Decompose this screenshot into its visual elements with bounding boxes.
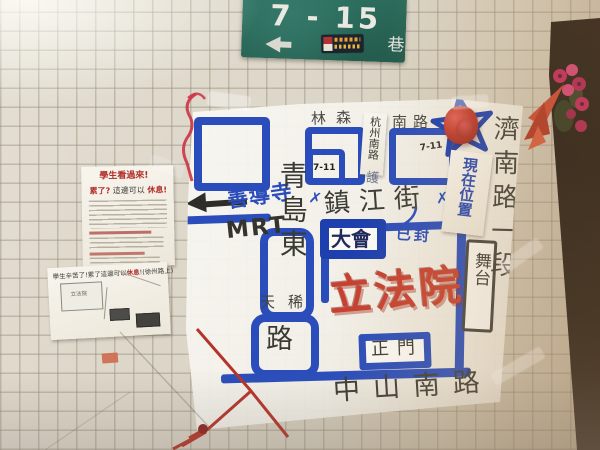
- flyer1-title: 學生看過來!: [99, 172, 148, 183]
- sticker-text-row: [334, 37, 360, 41]
- current-location-text: 現在位置: [455, 156, 479, 218]
- sticker-emblem: [323, 37, 332, 51]
- flyer1-subtitle-red2: 休息!: [147, 185, 167, 194]
- photo-of-wall-map: 7 - 15 巷 7-11 7-11 大會 正門: [0, 0, 600, 450]
- tape-street-label: 杭州南路: [360, 112, 387, 175]
- red-ribbon-ornament: [520, 82, 566, 152]
- flyer1-body-text-lines: [89, 236, 163, 249]
- qingdao-east-label: 青島東: [276, 161, 307, 263]
- sign-sticker: [321, 34, 363, 53]
- flyer2-map-label: 立法院: [70, 291, 87, 298]
- flyer-rest-info: 學生看過來! 累了? 這邊可以 休息!: [81, 165, 175, 267]
- flyer1-subtitle-red1: 累了?: [89, 186, 110, 195]
- small-red-sticker: [102, 352, 119, 363]
- qingdao-lu-char: 路: [266, 325, 293, 355]
- char-under-tape: 護: [365, 171, 379, 187]
- flyer1-body-text-lines: [89, 199, 167, 228]
- flyer2-map-building-dark: [109, 308, 130, 321]
- flyer1-subtitle: 累了? 這邊可以 休息!: [89, 184, 167, 196]
- sign-arrow-shaft: [278, 41, 291, 47]
- flyer1-red-heading-line: [89, 231, 151, 235]
- sticker-text-row: [334, 44, 360, 48]
- seven-eleven-label: 7-11: [313, 164, 336, 174]
- map-block-northwest: [194, 117, 270, 191]
- overpass-label: 天稀: [260, 294, 316, 311]
- flyer2-map-building-dark: [136, 312, 161, 327]
- main-gate-label: 正門: [371, 338, 424, 360]
- street-sign: 7 - 15 巷: [241, 0, 407, 63]
- sign-lane-char: 巷: [387, 36, 405, 55]
- flyer1-subtitle-black: 這邊可以: [113, 186, 145, 196]
- tape-street-text: 杭州南路: [366, 116, 381, 161]
- sealed-label: 已封: [395, 226, 432, 245]
- flyer-rest-map: 學生辛苦了!累了這邊可以休息!(徐州路上) 立法院: [47, 262, 171, 340]
- clear-tape: [452, 95, 489, 109]
- flyer2-title: 學生辛苦了!累了這邊可以休息!(徐州路上): [52, 265, 173, 281]
- sign-number: 7 - 15: [270, 0, 382, 36]
- linsen-road-label-left: 林森: [311, 109, 362, 127]
- flyer2-map-road-line: [104, 287, 108, 319]
- flyer1-red-heading-line: [90, 252, 145, 255]
- assembly-hall-label: 大會: [331, 228, 371, 250]
